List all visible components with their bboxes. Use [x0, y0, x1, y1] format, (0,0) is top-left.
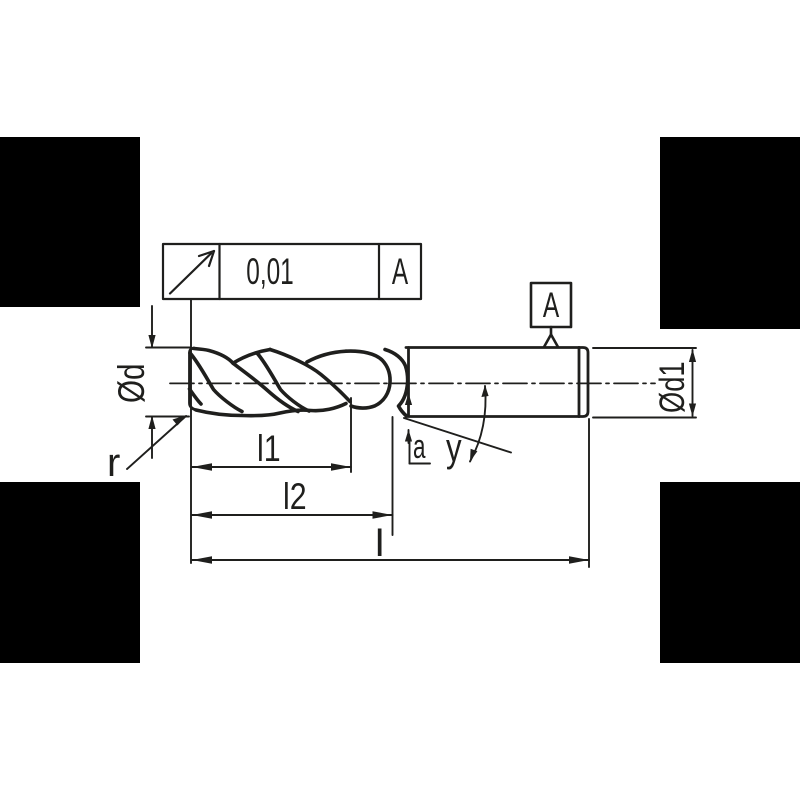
svg-text:l1: l1 — [257, 428, 281, 470]
svg-text:a: a — [413, 428, 426, 466]
svg-text:l2: l2 — [283, 476, 307, 518]
svg-text:0,01: 0,01 — [246, 251, 294, 292]
svg-text:A: A — [392, 251, 408, 292]
svg-text:A: A — [543, 287, 560, 325]
svg-text:Ød: Ød — [112, 364, 153, 403]
svg-text:l: l — [375, 523, 384, 565]
svg-text:r: r — [107, 441, 120, 485]
svg-text:Ød1: Ød1 — [653, 361, 692, 413]
svg-text:y: y — [446, 425, 462, 470]
